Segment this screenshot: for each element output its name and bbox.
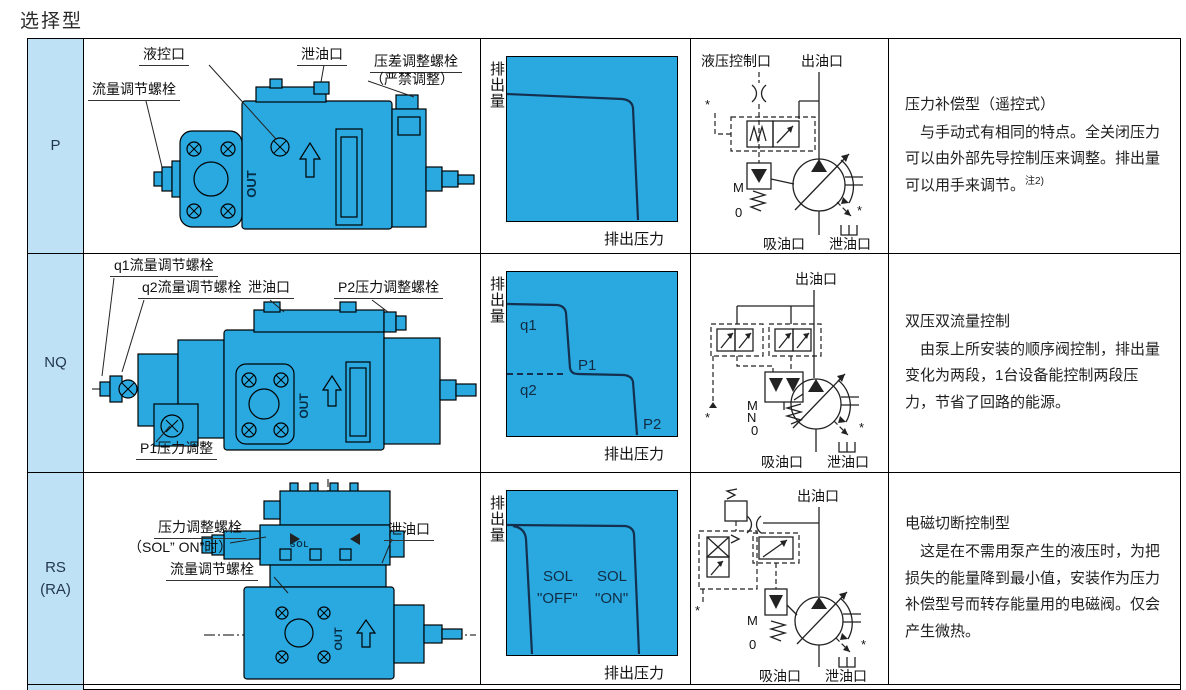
chart-ann-q1: q1 — [520, 317, 537, 334]
chart-ann-q2: q2 — [520, 382, 537, 399]
circuit-star-left-nq: * — [705, 410, 710, 425]
circuit-pilot-label-p: 液压控制口 — [701, 53, 771, 69]
circuit-m-label-p: M — [733, 180, 744, 195]
chart-curve-nq: q1 q2 P1 P2 — [507, 272, 676, 435]
pump-cell-p: OUT 液控口 泄油口 压差调整螺栓 （严禁调整） 流量调节螺栓 — [84, 39, 481, 253]
type-cell-nq: NQ — [28, 254, 84, 472]
chart-curve-rs: SOL "OFF" SOL "ON" — [507, 491, 676, 654]
pump-body-nq — [100, 302, 476, 450]
desc-body-text-nq: 由泵上所安装的顺序阀控制，排出量变化为两段，1台设备能控制两段压力，节省了回路的… — [905, 341, 1160, 411]
type-label-rs-line1: RS — [45, 557, 66, 579]
chart-plot-p — [506, 56, 678, 222]
circuit-star-right-nq: * — [859, 420, 864, 435]
type-label-rs-line2: (RA) — [40, 579, 71, 601]
desc-title-nq: 双压双流量控制 — [905, 309, 1168, 335]
circuit-outlet-label-nq: 出油口 — [795, 271, 837, 287]
chart-cell-rs: 排出量 SOL "OFF" SOL "ON" 排出压力 — [481, 473, 691, 684]
callout-q1-bolt: q1流量调节螺栓 — [110, 257, 218, 277]
pump-out-text-rs: OUT — [333, 627, 345, 651]
chart-xlabel-rs: 排出压力 — [481, 662, 678, 683]
chart-ylabel-rs: 排出量 — [486, 495, 507, 543]
callout-diff-bolt-note: （严禁调整） — [370, 71, 454, 89]
desc-body-rs: 这是在不需用泵产生的液压时，为把损失的能量降到最小值，安装作为压力补偿型号而转存… — [905, 539, 1168, 646]
circuit-star-right-rs: * — [861, 637, 866, 652]
circuit-suction-label-p: 吸油口 — [763, 236, 805, 252]
circuit-suction-label-rs: 吸油口 — [759, 668, 801, 684]
table-row-p: P — [28, 39, 1180, 254]
desc-cell-nq: 双压双流量控制 由泵上所安装的顺序阀控制，排出量变化为两段，1台设备能控制两段压… — [889, 254, 1180, 472]
type-label-p: P — [50, 135, 60, 157]
callout-diff-bolt: 压差调整螺栓 — [370, 53, 462, 73]
chart-plot-rs: SOL "OFF" SOL "ON" — [506, 490, 678, 656]
callout-pilot-port: 液控口 — [139, 46, 189, 66]
type-cell-p: P — [28, 39, 84, 253]
circuit-drain-label-nq: 泄油口 — [827, 454, 869, 470]
type-cell-next-partial — [28, 685, 84, 690]
circuit-cell-nq: * — [691, 254, 889, 472]
pump-sol-text-rs: SOL — [290, 540, 309, 549]
desc-body-text-rs: 这是在不需用泵产生的液压时，为把损失的能量降到最小值，安装作为压力补偿型号而转存… — [905, 543, 1160, 640]
chart-ann-sol-off-2: "OFF" — [537, 590, 578, 607]
circuit-diagram-nq: * — [691, 254, 888, 472]
page-title: 选择型 — [20, 6, 83, 33]
pump-out-text-p: OUT — [244, 170, 259, 198]
chart-ylabel-p: 排出量 — [486, 61, 507, 109]
desc-note-p: 注2) — [1025, 176, 1044, 187]
chart-cell-p: 排出量 排出压力 — [481, 39, 691, 253]
circuit-star-left-rs: * — [695, 603, 700, 618]
chart-xlabel-nq: 排出压力 — [481, 443, 678, 464]
chart-ann-sol-off-1: SOL — [543, 568, 573, 585]
callout-flow-bolt: 流量调节螺栓 — [88, 81, 180, 101]
circuit-graphics-rs: * — [695, 489, 866, 667]
circuit-graphics-p: * — [705, 72, 863, 235]
circuit-star-left-p: * — [705, 97, 710, 112]
chart-ann-sol-on-2: "ON" — [595, 590, 628, 607]
circuit-diagram-p: * — [691, 39, 888, 253]
desc-cell-rs: 电磁切断控制型 这是在不需用泵产生的液压时，为把损失的能量降到最小值，安装作为压… — [889, 473, 1180, 684]
chart-plot-nq: q1 q2 P1 P2 — [506, 271, 678, 437]
circuit-zero-label-rs: 0 — [749, 637, 756, 652]
pump-out-text-nq: OUT — [297, 393, 311, 419]
callout-drain-port-nq: 泄油口 — [244, 279, 294, 299]
pump-illustration-rs: SOL OUT — [84, 473, 481, 683]
callout-pressure-bolt: 压力调整螺栓 — [154, 519, 246, 539]
selection-table: P — [27, 38, 1181, 690]
pump-cell-rs: SOL OUT 压力调整螺栓 （SOL” ON”时） 泄油口 流量调节螺栓 — [84, 473, 481, 684]
callout-drain-port-rs: 泄油口 — [384, 521, 434, 541]
circuit-m-label-rs: M — [747, 613, 758, 628]
catalog-page: 选择型 P — [0, 0, 1186, 690]
table-row-rs: RS (RA) — [28, 473, 1180, 685]
circuit-cell-rs: * — [691, 473, 889, 684]
chart-cell-nq: 排出量 q1 q2 P1 P2 排出压力 — [481, 254, 691, 472]
chart-curve-p — [507, 57, 676, 220]
desc-title-rs: 电磁切断控制型 — [905, 511, 1168, 537]
chart-xlabel-p: 排出压力 — [481, 228, 678, 249]
chart-ann-p1: P1 — [578, 357, 596, 374]
circuit-zero-label-nq: 0 — [751, 423, 758, 438]
callout-p1-adjust: P1压力调整 — [136, 440, 217, 460]
desc-cell-p: 压力补偿型（遥控式） 与手动式有相同的特点。全关闭压力可以由外部先导控制压来调整… — [889, 39, 1180, 253]
pump-cell-nq: OUT q1流量调节螺栓 q2流量调节螺栓 泄油口 P2压力调整螺栓 P1压力调… — [84, 254, 481, 472]
callout-drain-port: 泄油口 — [297, 46, 347, 66]
pump-body-p — [154, 79, 474, 229]
circuit-diagram-rs: * — [691, 473, 888, 684]
callout-q2-bolt: q2流量调节螺栓 — [138, 279, 246, 299]
circuit-drain-label-rs: 泄油口 — [825, 668, 867, 684]
chart-ann-p2: P2 — [643, 416, 661, 433]
next-row-partial-area — [84, 685, 1180, 690]
type-cell-rs: RS (RA) — [28, 473, 84, 684]
circuit-drain-label-p: 泄油口 — [829, 236, 871, 252]
type-label-nq: NQ — [44, 352, 67, 374]
callout-pressure-bolt-note: （SOL” ON”时） — [128, 539, 232, 557]
circuit-outlet-label-rs: 出油口 — [797, 488, 839, 504]
callout-p2-bolt: P2压力调整螺栓 — [334, 279, 443, 299]
chart-ylabel-nq: 排出量 — [486, 276, 507, 324]
desc-body-p: 与手动式有相同的特点。全关闭压力可以由外部先导控制压来调整。排出量可以用手来调节… — [905, 120, 1168, 200]
desc-body-nq: 由泵上所安装的顺序阀控制，排出量变化为两段，1台设备能控制两段压力，节省了回路的… — [905, 337, 1168, 417]
callout-flow-bolt-rs: 流量调节螺栓 — [166, 561, 258, 581]
circuit-zero-label-p: 0 — [735, 205, 742, 220]
circuit-suction-label-nq: 吸油口 — [761, 454, 803, 470]
table-row-nq: NQ — [28, 254, 1180, 473]
circuit-outlet-label-p: 出油口 — [801, 53, 843, 69]
circuit-graphics-nq: * — [705, 290, 864, 452]
pump-body-rs — [202, 483, 462, 679]
desc-title-p: 压力补偿型（遥控式） — [905, 92, 1168, 118]
table-row-next-partial — [28, 685, 1180, 690]
circuit-cell-p: * — [691, 39, 889, 253]
circuit-star-right-p: * — [857, 203, 862, 218]
chart-ann-sol-on-1: SOL — [597, 568, 627, 585]
